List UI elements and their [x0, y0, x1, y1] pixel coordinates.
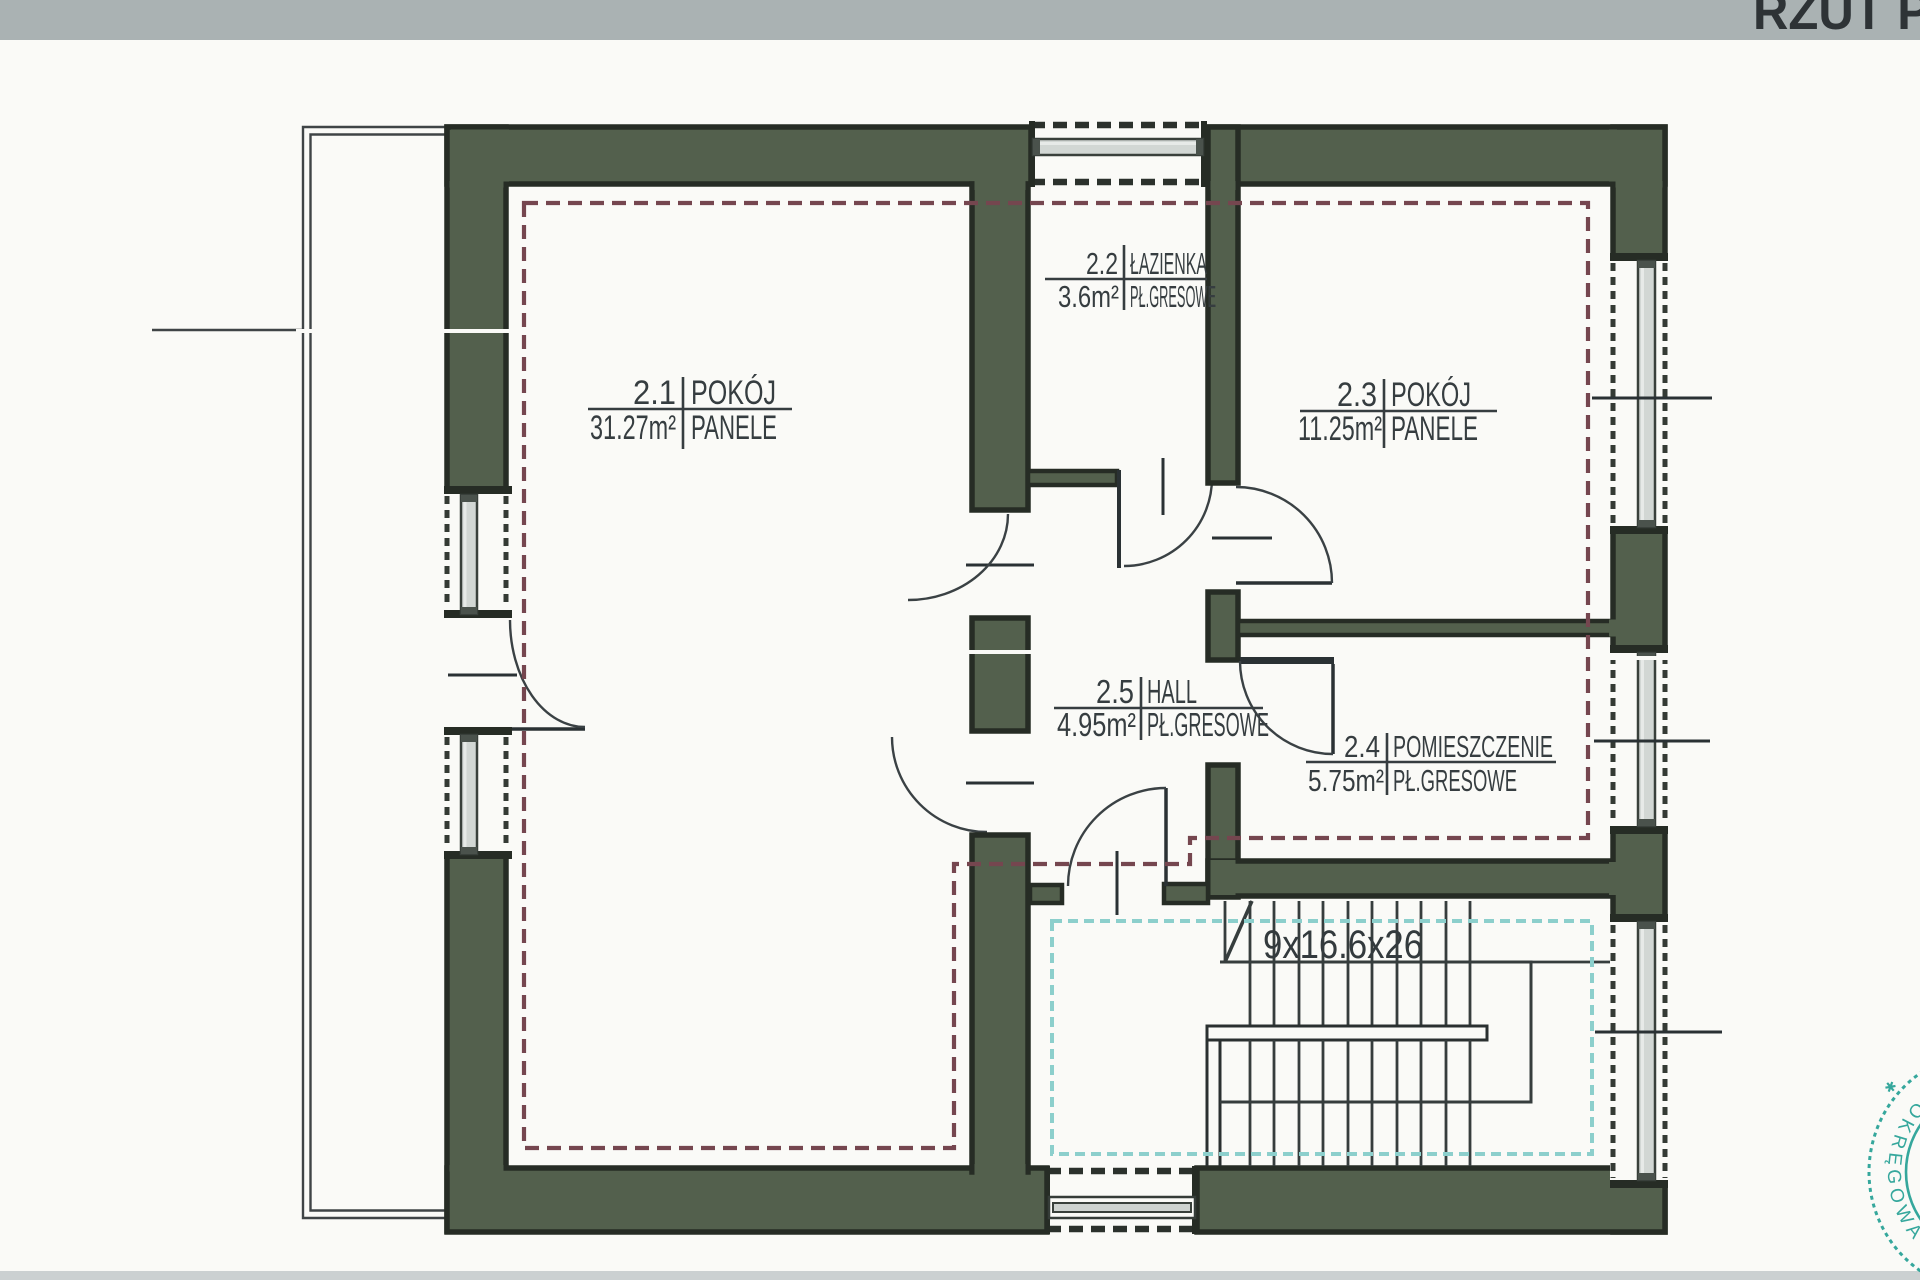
svg-text:POMIESZCZENIE: POMIESZCZENIE	[1393, 729, 1553, 764]
svg-text:2.5: 2.5	[1096, 673, 1134, 710]
svg-text:11.25m²: 11.25m²	[1298, 410, 1382, 448]
svg-text:RZUT P: RZUT P	[1753, 0, 1920, 41]
svg-text:POKÓJ: POKÓJ	[691, 374, 776, 412]
svg-text:HALL: HALL	[1147, 673, 1197, 710]
svg-text:PŁ.GRESOWE: PŁ.GRESOWE	[1130, 279, 1216, 314]
svg-text:31.27m²: 31.27m²	[590, 409, 676, 447]
svg-text:3.6m²: 3.6m²	[1058, 279, 1119, 314]
svg-text:9x16.6x26: 9x16.6x26	[1263, 923, 1423, 967]
svg-text:2.3: 2.3	[1337, 376, 1377, 414]
svg-text:4.95m²: 4.95m²	[1057, 706, 1136, 743]
svg-text:ŁAZIENKA: ŁAZIENKA	[1130, 246, 1207, 281]
svg-text:POKÓJ: POKÓJ	[1391, 376, 1471, 414]
svg-text:2.1: 2.1	[633, 374, 676, 412]
svg-text:2.4: 2.4	[1344, 729, 1380, 764]
svg-text:PANELE: PANELE	[1391, 410, 1478, 448]
svg-text:PŁ.GRESOWE: PŁ.GRESOWE	[1393, 763, 1517, 798]
svg-text:PŁ.GRESOWE: PŁ.GRESOWE	[1147, 706, 1269, 743]
svg-text:PANELE: PANELE	[691, 409, 777, 447]
svg-text:5.75m²: 5.75m²	[1308, 763, 1384, 798]
svg-text:2.2: 2.2	[1086, 246, 1118, 281]
